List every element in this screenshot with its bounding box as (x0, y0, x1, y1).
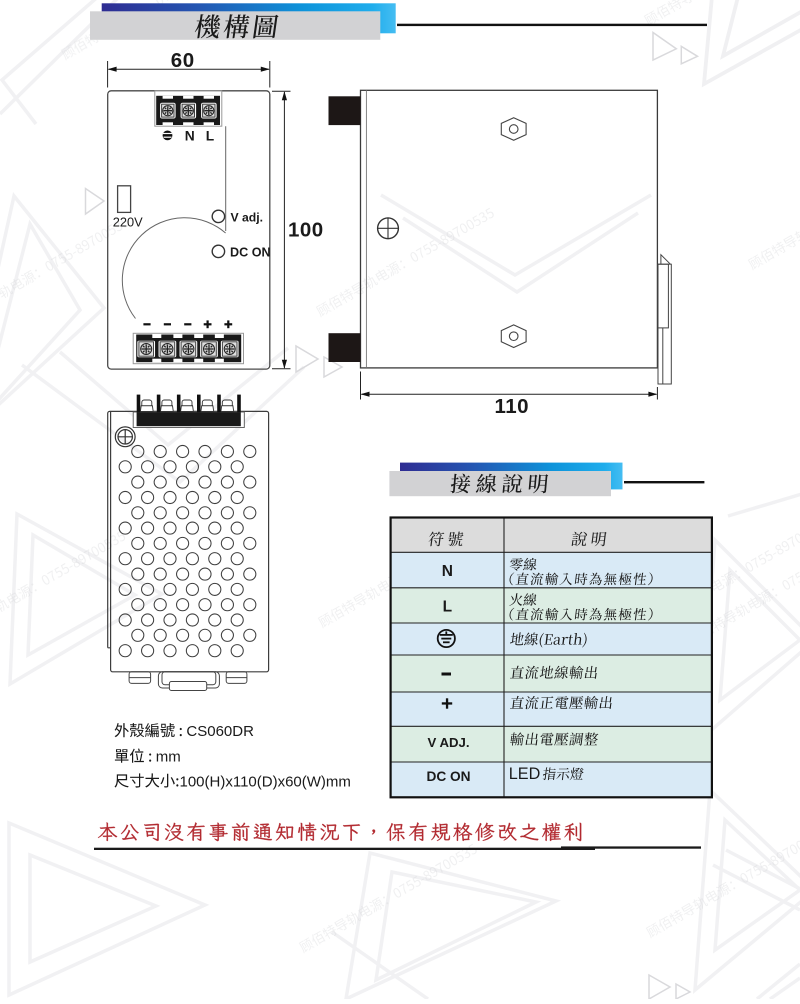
svg-text:V adj.: V adj. (231, 211, 264, 225)
svg-text:L: L (206, 128, 214, 143)
svg-text:N: N (442, 563, 453, 580)
svg-text:DC ON: DC ON (230, 246, 271, 260)
svg-text:110: 110 (495, 395, 530, 418)
svg-text:60: 60 (171, 49, 195, 72)
svg-text:L: L (443, 598, 452, 615)
svg-text:CS060DR: CS060DR (186, 723, 254, 740)
svg-text:V ADJ.: V ADJ. (427, 735, 469, 750)
svg-text:LED: LED (509, 765, 541, 783)
svg-text:100: 100 (288, 219, 324, 242)
svg-text:100(H)x110(D)x60(W)mm: 100(H)x110(D)x60(W)mm (180, 773, 351, 790)
svg-text:mm: mm (156, 749, 181, 766)
svg-text:220V: 220V (113, 215, 143, 230)
svg-text:N: N (185, 128, 195, 143)
svg-text:DC ON: DC ON (426, 769, 470, 784)
